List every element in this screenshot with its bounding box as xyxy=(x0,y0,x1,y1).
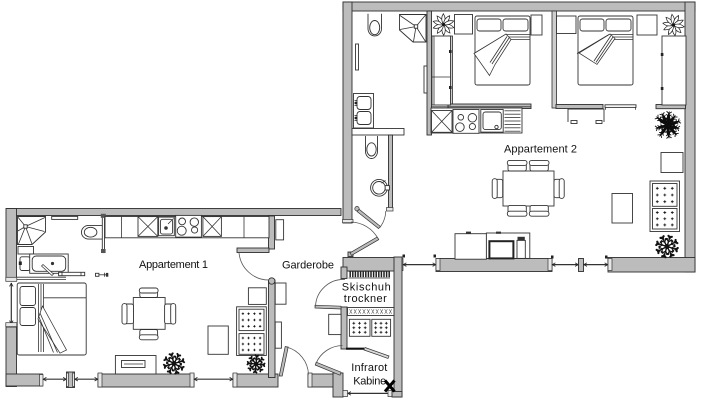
svg-text:Appartement 2: Appartement 2 xyxy=(504,143,577,155)
svg-text:Skischuh: Skischuh xyxy=(342,282,391,294)
svg-text:Infrarot: Infrarot xyxy=(351,362,387,374)
svg-text:Appartement 1: Appartement 1 xyxy=(139,259,208,271)
svg-text:Garderobe: Garderobe xyxy=(282,260,334,272)
svg-text:trockner: trockner xyxy=(344,293,387,305)
svg-text:Kabine: Kabine xyxy=(353,376,386,388)
